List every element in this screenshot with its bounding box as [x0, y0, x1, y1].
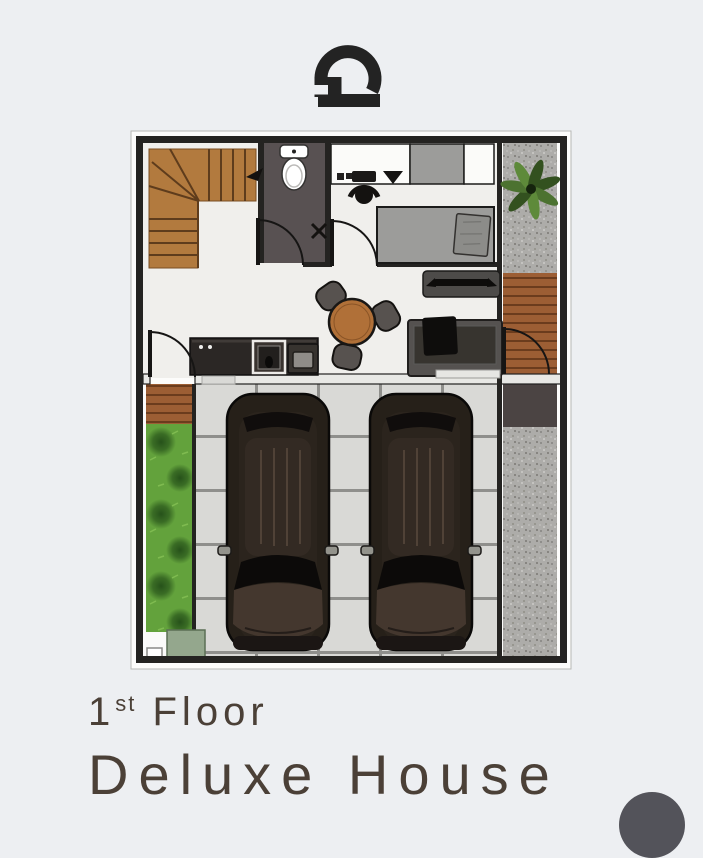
planter-box: [167, 630, 205, 657]
brand-logo: [313, 44, 382, 107]
kitchen-counter: [190, 338, 318, 375]
entry-door-leaf: [148, 330, 152, 377]
utility-pad: [503, 384, 557, 427]
sofa-cushion: [422, 316, 458, 356]
caption: 1st Floor Deluxe House: [88, 689, 560, 807]
fab-button[interactable]: [619, 792, 685, 858]
arch-logo-notch: [313, 85, 328, 95]
desk-appliance: [352, 171, 376, 182]
car-right: [361, 394, 481, 650]
sofa: [408, 316, 502, 376]
threshold-square: [147, 648, 162, 657]
wall-shelf: [436, 370, 500, 378]
oven: [253, 341, 285, 373]
dining-table: [329, 299, 375, 345]
side-counter: [464, 144, 494, 184]
floor-mat: [202, 376, 235, 384]
floor-plan: [130, 130, 573, 670]
microwave: [288, 344, 318, 373]
right-deck: [503, 273, 557, 374]
car-left: [218, 394, 338, 650]
deck-door-leaf: [502, 327, 506, 374]
tv-console: [423, 271, 500, 297]
page: 1st Floor Deluxe House: [0, 0, 703, 804]
floor-label: 1st Floor: [88, 689, 560, 735]
grass-strip: [146, 424, 192, 632]
house-name: Deluxe House: [88, 742, 560, 807]
gravel-right: [503, 427, 557, 657]
floor-number: 1: [88, 690, 115, 734]
wardrobe: [410, 144, 464, 184]
floor-suffix: st: [115, 691, 136, 716]
left-deck: [146, 384, 192, 424]
pillow: [453, 214, 490, 257]
bathroom-door-leaf: [256, 218, 260, 265]
floor-word: Floor: [153, 690, 269, 734]
bedroom-door-leaf: [330, 219, 334, 266]
arch-logo-base: [318, 94, 380, 107]
toilet: [280, 145, 308, 190]
